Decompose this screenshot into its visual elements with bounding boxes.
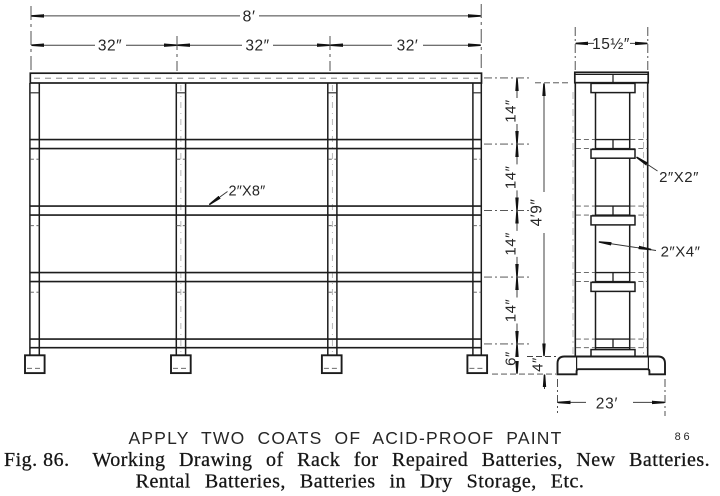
svg-text:4″: 4″ — [530, 357, 547, 372]
svg-text:Fig. 86.: Fig. 86. — [4, 449, 70, 471]
svg-text:2″X2″: 2″X2″ — [659, 169, 699, 186]
svg-text:6″: 6″ — [503, 351, 520, 366]
svg-text:4′9″: 4′9″ — [529, 199, 546, 227]
svg-text:14″: 14″ — [503, 99, 520, 123]
svg-text:32″: 32″ — [98, 38, 122, 55]
svg-text:14″: 14″ — [503, 232, 520, 256]
svg-text:2″X4″: 2″X4″ — [661, 244, 701, 261]
svg-text:23′: 23′ — [596, 396, 619, 413]
svg-text:86: 86 — [675, 431, 693, 443]
svg-text:Working Drawing of Rack for Re: Working Drawing of Rack for Repaired Bat… — [93, 449, 711, 471]
svg-text:APPLY TWO COATS OF ACID-PROOF: APPLY TWO COATS OF ACID-PROOF PAINT — [128, 428, 562, 448]
svg-text:14″: 14″ — [503, 165, 520, 189]
svg-text:32′: 32′ — [397, 38, 419, 55]
svg-text:8′: 8′ — [243, 9, 256, 26]
svg-text:14″: 14″ — [503, 299, 520, 323]
svg-text:15½″: 15½″ — [592, 36, 630, 53]
svg-text:Rental Batteries, Batteries in: Rental Batteries, Batteries in Dry Stora… — [136, 471, 585, 493]
svg-text:32″: 32″ — [245, 38, 269, 55]
svg-text:2″X8″: 2″X8″ — [228, 184, 265, 200]
